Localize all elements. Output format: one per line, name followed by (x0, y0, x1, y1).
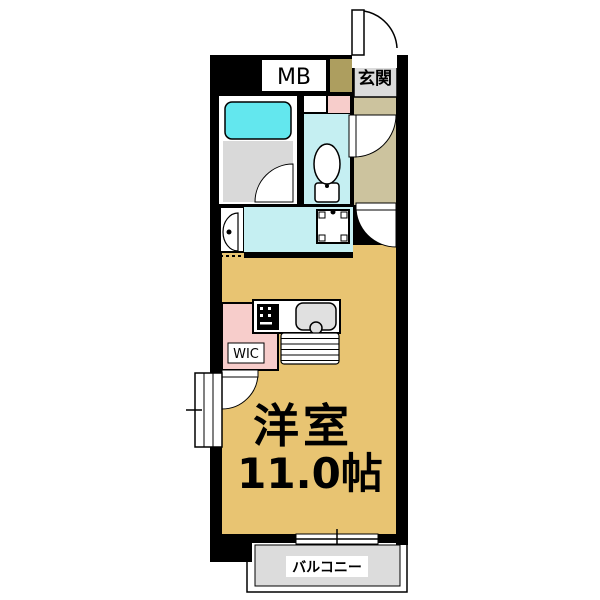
pad-corner (319, 212, 325, 218)
front-door-swing-arc (364, 11, 397, 48)
sink-faucet (310, 322, 322, 334)
stove-burner (260, 307, 263, 310)
stove-burner (260, 314, 263, 317)
wall-left-lower (210, 447, 222, 525)
main-room-name: 洋室 (253, 399, 353, 453)
stove-grill (260, 322, 272, 325)
washroom-bottom-wall (244, 252, 353, 258)
balcony-label: バルコニー (292, 560, 362, 576)
wall-right (396, 55, 408, 545)
meter-box-label: MB (277, 65, 311, 90)
entrance-label: 玄関 (358, 68, 392, 89)
wall-left-mid (210, 262, 222, 373)
pad-corner (319, 235, 325, 241)
shaft-white-square (304, 96, 326, 112)
wic-door-leaf (222, 370, 258, 377)
wic-label: WIC (233, 347, 259, 362)
stove-burner (268, 307, 271, 310)
toilet-door-leaf (349, 115, 356, 157)
stove-burner (268, 314, 271, 317)
pad-corner (341, 235, 347, 241)
floor-plan-svg: MB 玄関 WIC バルコニー (0, 0, 600, 600)
bathtub (225, 102, 291, 139)
front-door-leaf (352, 10, 364, 55)
pad-corner (341, 212, 347, 218)
toilet-bowl (314, 144, 340, 184)
floor-plan: MB 玄関 WIC バルコニー (0, 0, 600, 600)
meter-box-shaft (330, 59, 352, 92)
toilet-flush-dot (325, 184, 329, 188)
shaft-pink-square (328, 96, 350, 113)
main-room-door-leaf (356, 203, 396, 210)
main-room-size: 11.0帖 (237, 449, 383, 498)
kitchen-cabinet (281, 333, 339, 364)
washbasin-drain-dot (227, 230, 232, 235)
pad-faucet-dot (331, 210, 336, 215)
